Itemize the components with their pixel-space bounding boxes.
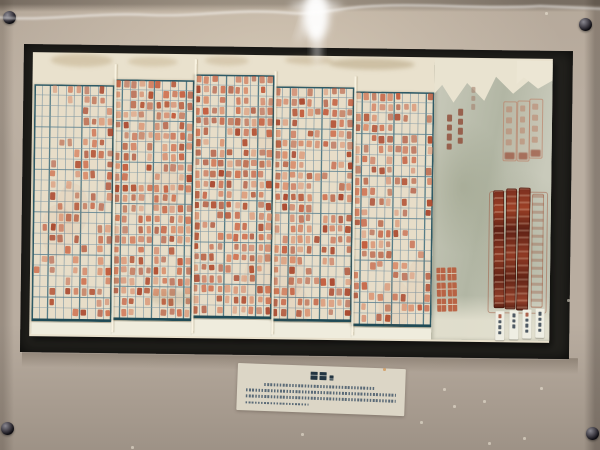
dust-speck <box>301 433 304 436</box>
seal-glyph <box>506 139 512 145</box>
caption-text-line <box>246 401 309 406</box>
handwriting-glyph <box>471 87 475 93</box>
caption-title-glyph <box>319 372 326 380</box>
paper-stain <box>51 53 113 67</box>
seal-glyph <box>506 128 512 134</box>
caption-text-line <box>264 383 375 390</box>
slip-mark <box>538 323 542 327</box>
slip-mark <box>498 314 502 318</box>
seal-glyph <box>532 104 538 110</box>
dust-speck <box>540 387 543 390</box>
dust-speck <box>483 400 486 403</box>
seal-glyph <box>506 106 512 112</box>
dust-speck <box>383 368 386 371</box>
photo-scene <box>0 0 600 450</box>
slip-mark <box>538 312 542 316</box>
mount-pin <box>1 422 14 435</box>
paper-bottom-strip <box>351 327 431 339</box>
paper-bottom-strip <box>111 321 191 336</box>
slip-mark <box>525 318 529 322</box>
slip-mark <box>512 319 516 323</box>
register-grid-panel <box>351 91 434 327</box>
register-grid-svg <box>31 84 114 322</box>
slip-mark <box>498 320 502 324</box>
paper-slip <box>495 311 504 340</box>
caption-card <box>236 363 406 416</box>
torn-paper-piece <box>434 58 531 103</box>
faint-red-seal <box>529 99 544 159</box>
stamp-glyph <box>436 268 445 282</box>
caption-title-glyph <box>329 375 333 380</box>
stamp-glyph <box>447 267 456 281</box>
seal-bottom-cap <box>505 152 515 159</box>
handwriting-glyph <box>458 118 463 125</box>
register-grid-svg <box>271 86 354 322</box>
seal-glyph <box>532 115 538 121</box>
paper-slip <box>535 309 544 338</box>
handwriting-glyph <box>447 124 452 131</box>
paper-stain <box>128 56 178 67</box>
handwriting-glyph <box>447 115 452 122</box>
handwriting-glyph <box>458 109 463 116</box>
document-paper <box>29 52 553 343</box>
recessed-display-frame <box>20 44 573 359</box>
dust-speck <box>453 405 456 408</box>
stamp-glyph <box>437 298 446 312</box>
mount-pin <box>3 11 16 24</box>
glare-streak <box>294 12 310 44</box>
slip-mark <box>498 331 502 335</box>
slip-mark <box>512 313 516 317</box>
dust-speck <box>567 299 570 302</box>
handwriting-glyph <box>447 134 452 141</box>
red-stamp <box>436 267 457 311</box>
paper-stains-layer <box>33 52 553 59</box>
paper-bottom-strip <box>191 319 271 337</box>
paper-stain <box>205 55 249 66</box>
register-grid-svg <box>351 91 434 327</box>
stamp-glyph <box>448 298 457 312</box>
seal-glyph <box>520 116 525 122</box>
handwriting-glyph <box>458 128 463 135</box>
seal-glyph <box>506 117 512 123</box>
paper-slip <box>522 310 531 339</box>
slip-mark <box>538 328 542 332</box>
slip-mark <box>525 329 529 333</box>
glare-sparkle <box>290 0 342 12</box>
seal-glyph <box>532 137 538 143</box>
register-grid-svg <box>191 74 274 319</box>
dust-speck <box>545 12 548 15</box>
stamp-glyph <box>448 283 457 297</box>
handwriting-column <box>471 87 475 110</box>
register-grid-panel <box>191 74 274 319</box>
seal-glyph <box>520 138 525 144</box>
handwriting-glyph <box>471 104 475 110</box>
slip-mark <box>498 325 502 329</box>
caption-title-glyph <box>310 372 317 380</box>
handwriting-column <box>458 109 463 144</box>
paper-slip <box>509 310 518 339</box>
register-grid-panel <box>31 84 114 322</box>
pale-seal-strip <box>531 194 544 308</box>
register-grid-panel <box>271 86 354 322</box>
faint-red-seal <box>503 101 518 161</box>
handwriting-glyph <box>447 143 452 150</box>
dark-seal-strip <box>493 190 505 308</box>
mount-pin <box>579 18 592 31</box>
seal-glyph <box>532 126 538 132</box>
seal-bottom-cap <box>519 152 528 159</box>
register-grid-svg <box>111 79 194 321</box>
dust-speck <box>488 442 491 445</box>
stamp-glyph <box>437 283 446 297</box>
handwriting-glyph <box>471 95 475 101</box>
slip-mark <box>512 324 516 328</box>
dust-speck <box>420 421 423 424</box>
dust-speck <box>443 388 446 391</box>
slip-mark <box>525 324 529 328</box>
handwriting-glyph <box>458 137 463 144</box>
handwriting-column <box>447 115 452 150</box>
slip-mark <box>525 313 529 317</box>
cover-section <box>431 62 553 341</box>
register-grid-panel <box>111 79 194 321</box>
seal-glyph <box>520 127 525 133</box>
dust-speck <box>523 437 526 440</box>
glare-blob <box>303 0 329 41</box>
slip-mark <box>538 317 542 321</box>
seal-bottom-cap <box>531 150 541 157</box>
paper-bottom-strip <box>31 322 111 335</box>
paper-stain <box>150 290 194 307</box>
mount-pin <box>586 427 599 440</box>
paper-stain <box>285 55 333 65</box>
seal-glyph <box>520 106 525 112</box>
paper-stain <box>329 58 415 70</box>
glare-line <box>0 5 600 18</box>
paper-bottom-strip <box>271 322 351 338</box>
dark-seal-strip <box>505 188 518 309</box>
dust-speck <box>131 446 134 449</box>
